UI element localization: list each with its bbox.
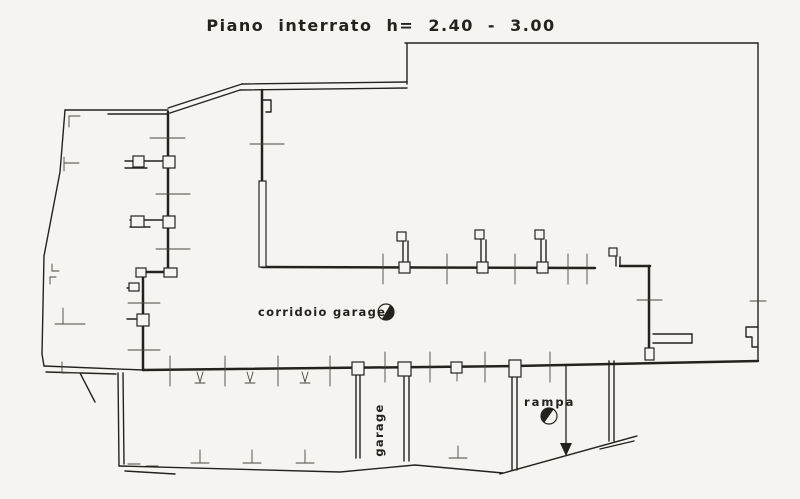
plan-title: Piano interrato h= 2.40 - 3.00 [206,16,555,35]
tick-line [305,372,308,382]
floor-plan-svg: Piano interrato h= 2.40 - 3.00 corridoio… [0,0,800,499]
pilaster-box [259,181,266,267]
pilaster-box [129,283,139,291]
pilaster-box [398,362,411,376]
wall-polyline [262,100,271,112]
pilaster-box [397,232,406,241]
wall-medium [168,84,242,108]
pilaster-box [451,362,462,373]
garage-label: garage [372,403,386,456]
pilaster-box [352,362,364,375]
corridor-label: corridoio garages [258,305,394,319]
pilaster-box [164,268,177,277]
pilaster-box [537,262,548,273]
wall-medium [123,373,124,464]
pilaster-box [509,360,521,377]
tick-line [247,372,250,382]
tick-line [302,372,305,382]
wall-medium [242,82,407,84]
pilaster-box [535,230,544,239]
pilaster-box [477,262,488,273]
wall-polyline [746,327,758,347]
tick-line [200,372,203,382]
wall-medium [118,373,119,466]
wall-medium [44,366,143,370]
pilaster-box [136,268,146,277]
wall-medium [240,88,407,90]
pilaster-box [645,348,654,360]
wall-medium [170,90,240,113]
wall-polyline [119,465,503,473]
scanned-floor-plan-sheet: Piano interrato h= 2.40 - 3.00 corridoio… [0,0,800,499]
ramp-label: rampa [524,395,575,409]
pilaster-box [609,248,617,256]
tick-line [197,372,200,382]
pilaster-box [475,230,484,239]
pilaster-box [399,262,410,273]
wall-medium [125,471,175,474]
pilaster-box [131,216,144,227]
wall-polyline [42,110,65,366]
pilaster-box [137,314,149,326]
wall-heavy [515,361,758,366]
wall-medium [80,373,95,402]
pilaster-box [133,156,144,167]
pilaster-box [163,216,175,228]
tick-line [250,372,253,382]
wall-medium [500,436,637,474]
pilaster-box [163,156,175,168]
walls-layer [42,43,766,474]
